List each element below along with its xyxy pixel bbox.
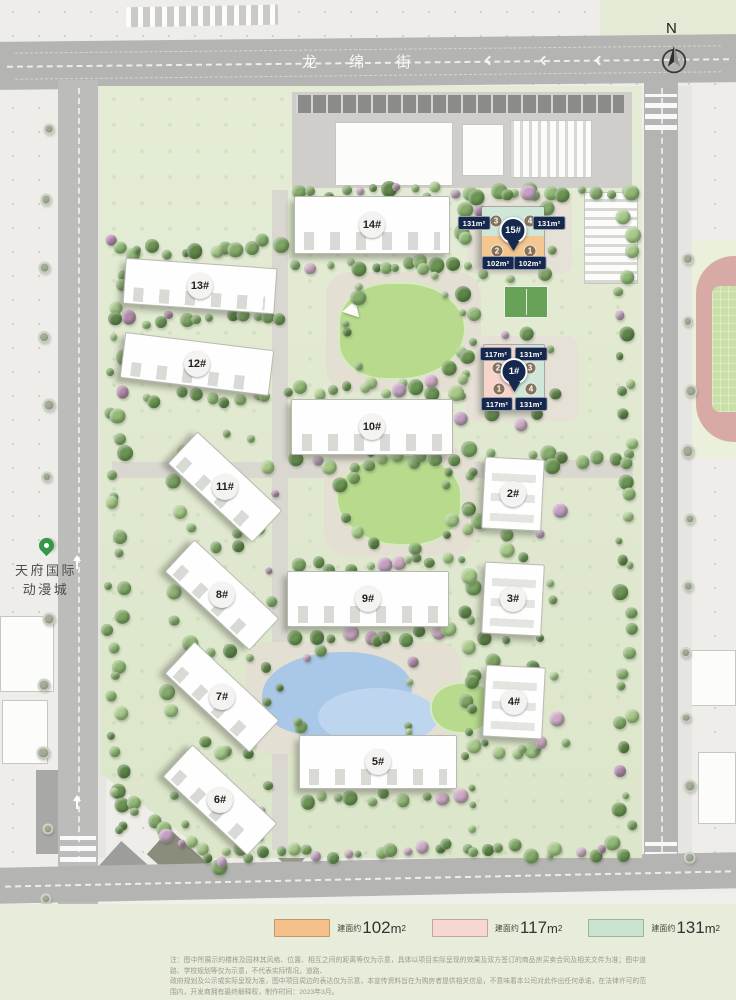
building-pin-1: 1# [501,358,528,392]
area-chip-15-3: 102m² [514,256,547,270]
legend-area-unit: m [547,921,558,936]
legend-prefix: 建面约 [651,923,675,934]
building-pin-label-15: 15# [500,217,527,244]
legend-area-unit: m [391,921,402,936]
legend-item-1: 建面约117m2 [432,918,562,938]
north-arrow-icon [656,42,692,78]
building-label-8: 8# [209,582,235,608]
landmark-name-line1: 天府国际 [4,561,88,580]
disclaimer-line1: 注：图中所展示的楼栋及园林其风格、位置、相互之间的距离等仅为示意，具体以项目实际… [170,956,646,977]
building-label-10: 10# [359,414,385,440]
area-chip-1-3: 131m² [515,397,548,411]
labels-layer: 14#13#12#10#11#2#8#9#3#7#4#5#6#3421131m²… [0,0,736,1000]
site-plan-canvas: 14#13#12#10#11#2#8#9#3#7#4#5#6#3421131m²… [0,0,736,1000]
building-pin-label-1: 1# [501,358,528,385]
area-chip-15-2: 102m² [482,256,515,270]
landmark: 天府国际 动漫城 [4,538,88,599]
building-label-11: 11# [212,474,238,500]
legend-prefix: 建面约 [495,923,519,934]
building-label-12: 12# [184,351,210,377]
street-name: 龙绵街 [302,51,443,72]
disclaimer: 注：图中所展示的楼栋及园林其风格、位置、相互之间的距离等仅为示意，具体以项目实际… [170,956,646,998]
legend-area-sup: 2 [558,924,562,933]
disclaimer-line2: 政府规划及公示或实际呈现为准，图中项目周边的表达仅为示意，本宣传资料旨在为购房者… [170,977,646,998]
legend-area-value: 131 [676,918,704,938]
building-label-3: 3# [500,586,526,612]
building-label-7: 7# [209,684,235,710]
north-label: N [666,20,677,37]
legend-area-sup: 2 [716,924,720,933]
legend-area-unit: m [705,921,716,936]
building-label-4: 4# [501,689,527,715]
legend-swatch-2 [588,919,644,937]
building-pin-15: 15# [500,217,527,251]
legend-item-2: 建面约131m2 [588,918,720,938]
legend-swatch-0 [274,919,330,937]
legend-area-value: 102 [362,918,390,938]
legend-item-0: 建面约102m2 [274,918,406,938]
area-chip-15-0: 131m² [458,216,491,230]
legend-swatch-1 [432,919,488,937]
building-label-9: 9# [355,586,381,612]
legend-area-sup: 2 [401,924,405,933]
area-chip-15-1: 131m² [533,216,566,230]
location-pin-icon [35,535,56,556]
building-label-13: 13# [187,273,213,299]
landmark-name-line2: 动漫城 [4,580,88,599]
building-label-5: 5# [365,749,391,775]
legend: 建面约102m2建面约117m2建面约131m2 [274,918,720,938]
building-label-2: 2# [500,481,526,507]
area-chip-1-2: 117m² [481,397,513,411]
legend-area-value: 117 [520,918,547,938]
building-pin-tail-1 [508,382,520,392]
legend-prefix: 建面约 [337,923,361,934]
building-pin-tail-15 [507,241,519,251]
building-label-6: 6# [207,787,233,813]
building-label-14: 14# [359,212,385,238]
